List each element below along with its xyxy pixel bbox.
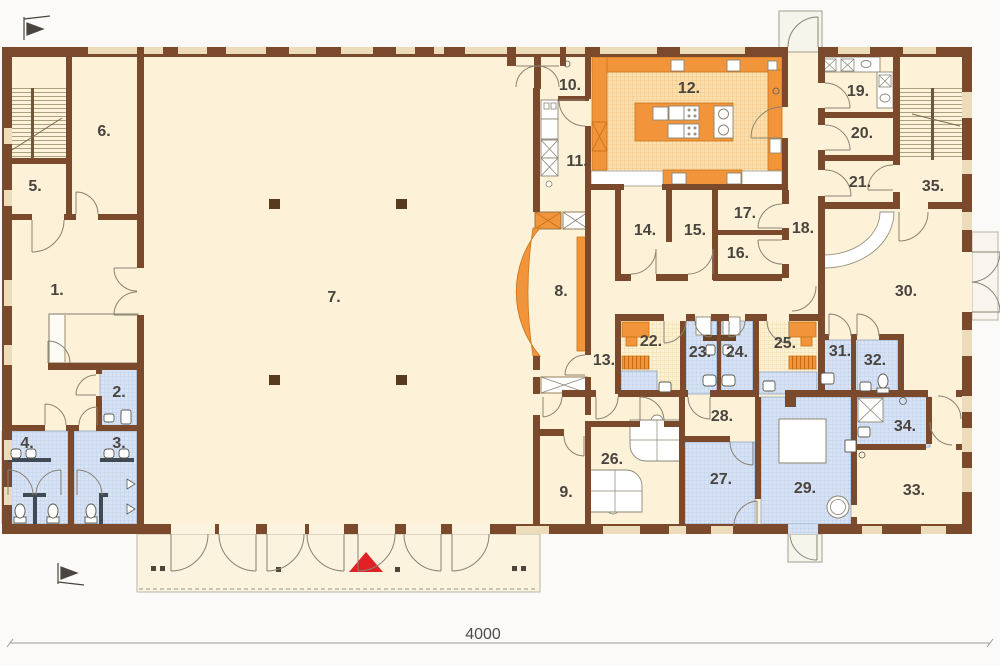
- svg-text:32.: 32.: [864, 352, 886, 369]
- svg-text:13.: 13.: [593, 352, 615, 369]
- svg-text:2.: 2.: [112, 384, 125, 401]
- svg-text:5.: 5.: [28, 178, 41, 195]
- svg-text:25.: 25.: [774, 335, 796, 352]
- svg-text:14.: 14.: [634, 222, 656, 239]
- svg-text:7.: 7.: [327, 289, 340, 306]
- svg-text:12.: 12.: [678, 80, 700, 97]
- svg-text:8.: 8.: [554, 283, 567, 300]
- svg-text:31.: 31.: [829, 343, 851, 360]
- svg-text:27.: 27.: [710, 471, 732, 488]
- svg-text:34.: 34.: [894, 418, 916, 435]
- svg-text:28.: 28.: [711, 408, 733, 425]
- svg-text:33.: 33.: [903, 482, 925, 499]
- svg-text:10.: 10.: [559, 77, 581, 94]
- svg-text:18.: 18.: [792, 220, 814, 237]
- svg-text:19.: 19.: [847, 83, 869, 100]
- svg-text:4000: 4000: [465, 626, 501, 643]
- svg-text:17.: 17.: [734, 205, 756, 222]
- svg-text:15.: 15.: [684, 222, 706, 239]
- svg-text:6.: 6.: [97, 123, 110, 140]
- svg-text:9.: 9.: [559, 484, 572, 501]
- svg-text:11.: 11.: [566, 153, 587, 170]
- svg-text:4.: 4.: [20, 435, 33, 452]
- svg-text:26.: 26.: [601, 451, 623, 468]
- svg-text:23.: 23.: [689, 344, 711, 361]
- svg-text:22.: 22.: [640, 333, 662, 350]
- svg-text:16.: 16.: [727, 245, 749, 262]
- svg-text:29.: 29.: [794, 480, 816, 497]
- svg-text:3.: 3.: [112, 435, 125, 452]
- svg-text:30.: 30.: [895, 283, 917, 300]
- svg-text:20.: 20.: [851, 125, 873, 142]
- svg-text:21.: 21.: [849, 174, 871, 191]
- svg-text:35.: 35.: [922, 178, 944, 195]
- svg-text:24.: 24.: [726, 344, 748, 361]
- svg-text:1.: 1.: [50, 282, 63, 299]
